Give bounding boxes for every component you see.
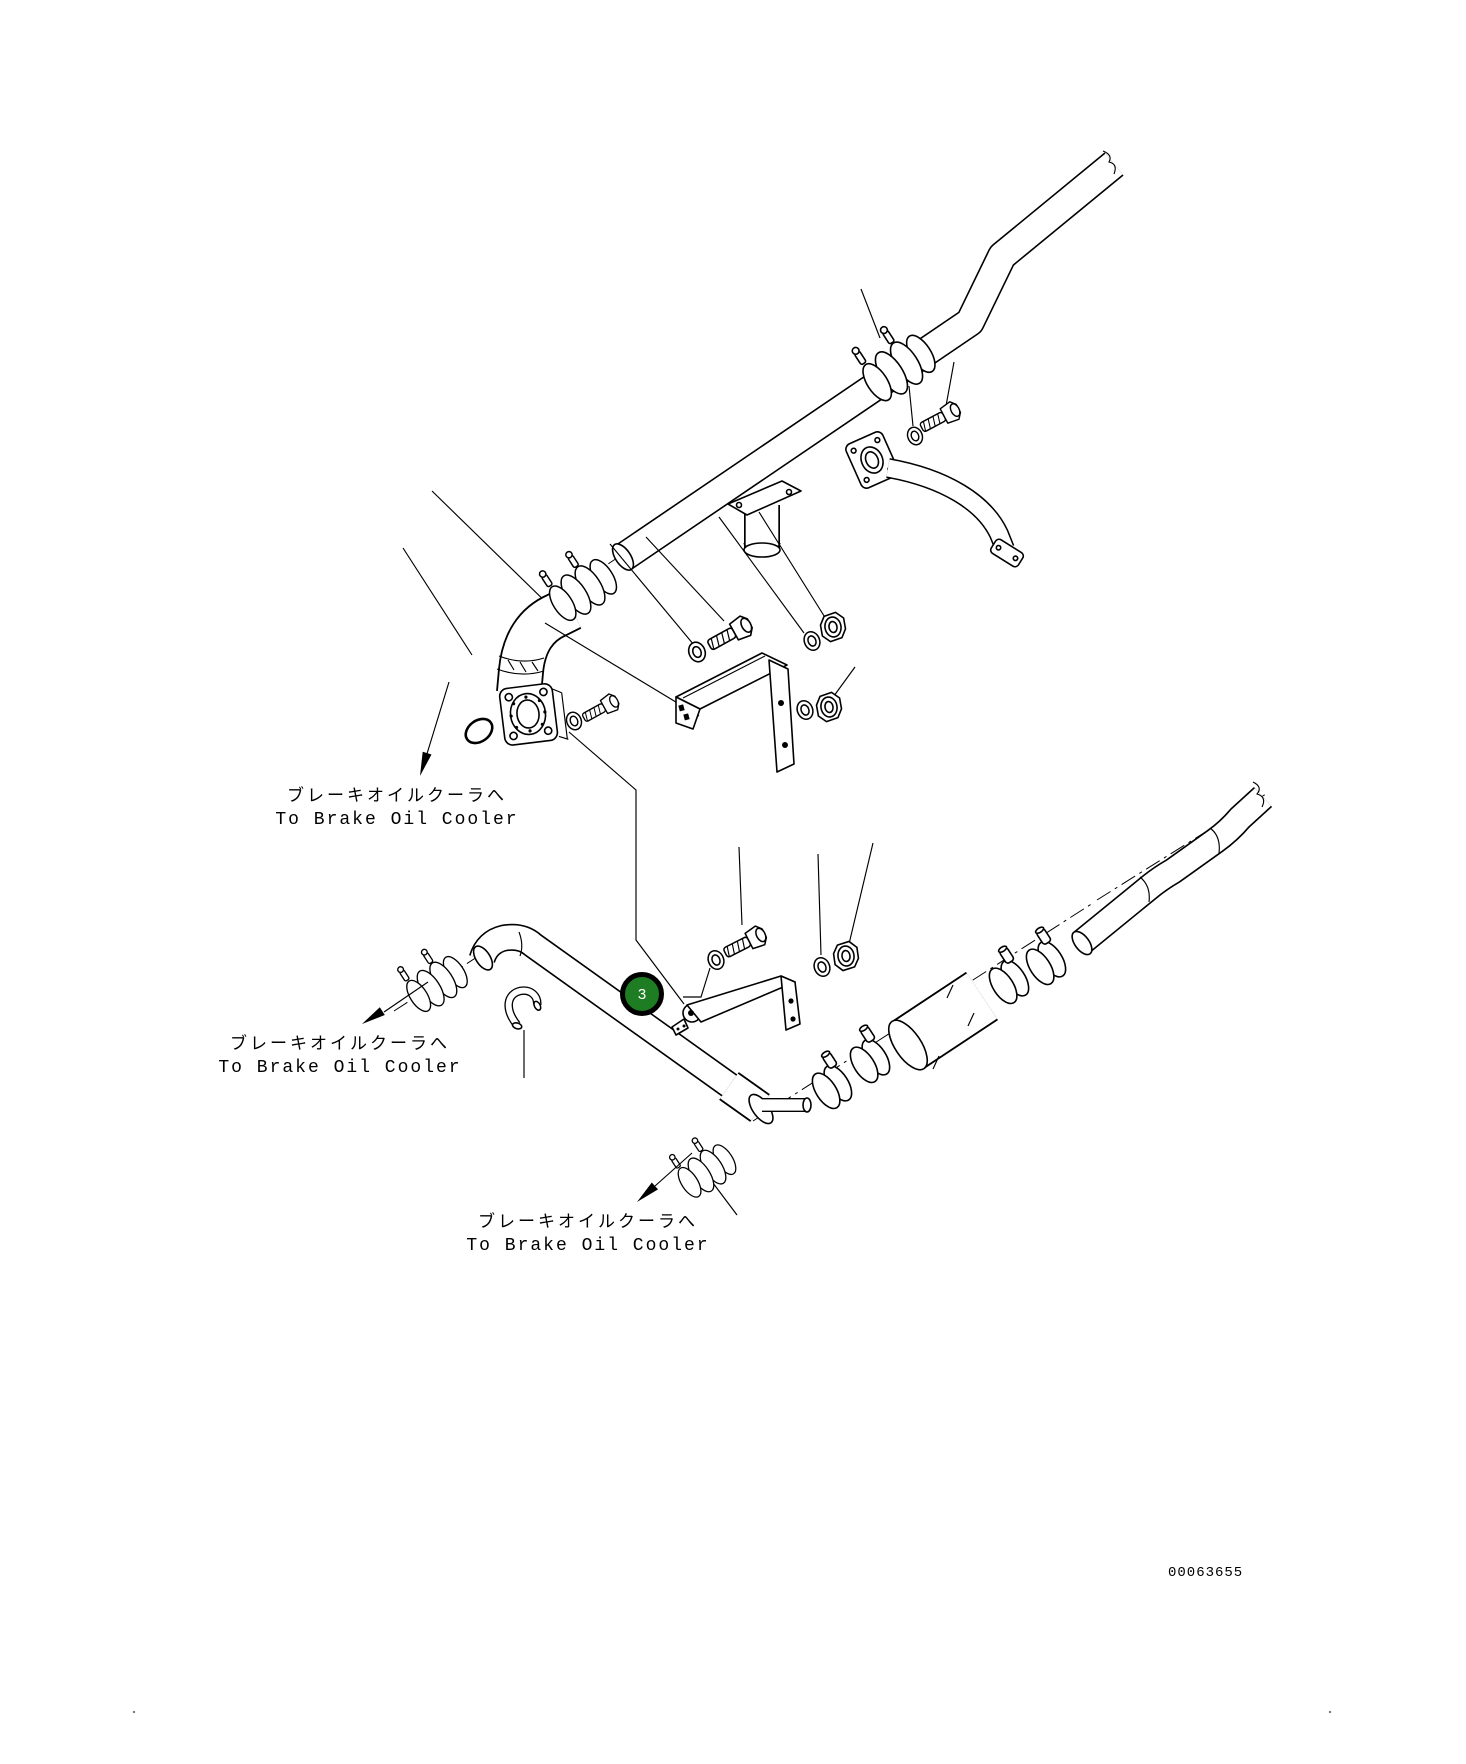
arrow-line <box>426 682 449 757</box>
label-english: To Brake Oil Cooler <box>247 808 547 832</box>
washer <box>686 640 708 665</box>
washer <box>564 710 584 732</box>
nut <box>819 611 847 643</box>
band-clamp <box>977 945 1034 1008</box>
bolt <box>917 399 963 436</box>
nut <box>815 691 843 723</box>
washer <box>705 948 726 971</box>
leader-zigzag <box>569 732 684 1004</box>
nut <box>832 940 860 971</box>
label-japanese: ブレーキオイルクーラへ <box>247 784 547 808</box>
brake-cooler-pipe <box>470 932 811 1127</box>
bolt <box>580 692 622 726</box>
elbow-pipe <box>497 608 571 693</box>
lower-right-hose-run <box>800 782 1264 1113</box>
label-english: To Brake Oil Cooler <box>190 1056 490 1080</box>
label-japanese: ブレーキオイルクーラへ <box>190 1032 490 1056</box>
bolt <box>721 924 770 963</box>
mounting-bracket <box>676 653 794 772</box>
arrowhead <box>362 1007 385 1024</box>
hose-sleeve <box>881 985 982 1076</box>
upper-pipe-assembly <box>536 151 1116 612</box>
parts-diagram-page: ブレーキオイルクーラへ To Brake Oil Cooler ブレーキオイルク… <box>0 0 1466 1764</box>
hose-coupling-clamp <box>664 1126 742 1203</box>
label-japanese: ブレーキオイルクーラへ <box>438 1210 738 1234</box>
washer <box>794 698 815 721</box>
label-brake-oil-cooler-top: ブレーキオイルクーラへ To Brake Oil Cooler <box>247 784 547 832</box>
drawing-number: 00063655 <box>1168 1565 1243 1581</box>
bottom-coupling-group <box>637 1126 742 1215</box>
page-mark <box>133 1711 135 1713</box>
bolt <box>704 613 755 655</box>
u-hose-clamp <box>507 988 545 1031</box>
square-flange <box>499 682 569 747</box>
part-callout-3[interactable]: 3 <box>620 972 664 1016</box>
arrowhead <box>420 752 432 776</box>
hose-coupling-clamp <box>392 937 474 1017</box>
strap-bracket <box>672 976 800 1035</box>
washer <box>801 629 822 652</box>
label-brake-oil-cooler-middle: ブレーキオイルクーラへ To Brake Oil Cooler <box>190 1032 490 1080</box>
page-mark <box>1329 1711 1331 1713</box>
washer <box>811 955 832 978</box>
o-ring <box>461 714 497 748</box>
label-english: To Brake Oil Cooler <box>438 1234 738 1258</box>
exploded-drawing <box>0 0 1466 1764</box>
label-brake-oil-cooler-bottom: ブレーキオイルクーラへ To Brake Oil Cooler <box>438 1210 738 1258</box>
return-pipe <box>1068 782 1263 958</box>
left-elbow-assembly <box>403 491 623 776</box>
curved-hose <box>888 468 1025 568</box>
